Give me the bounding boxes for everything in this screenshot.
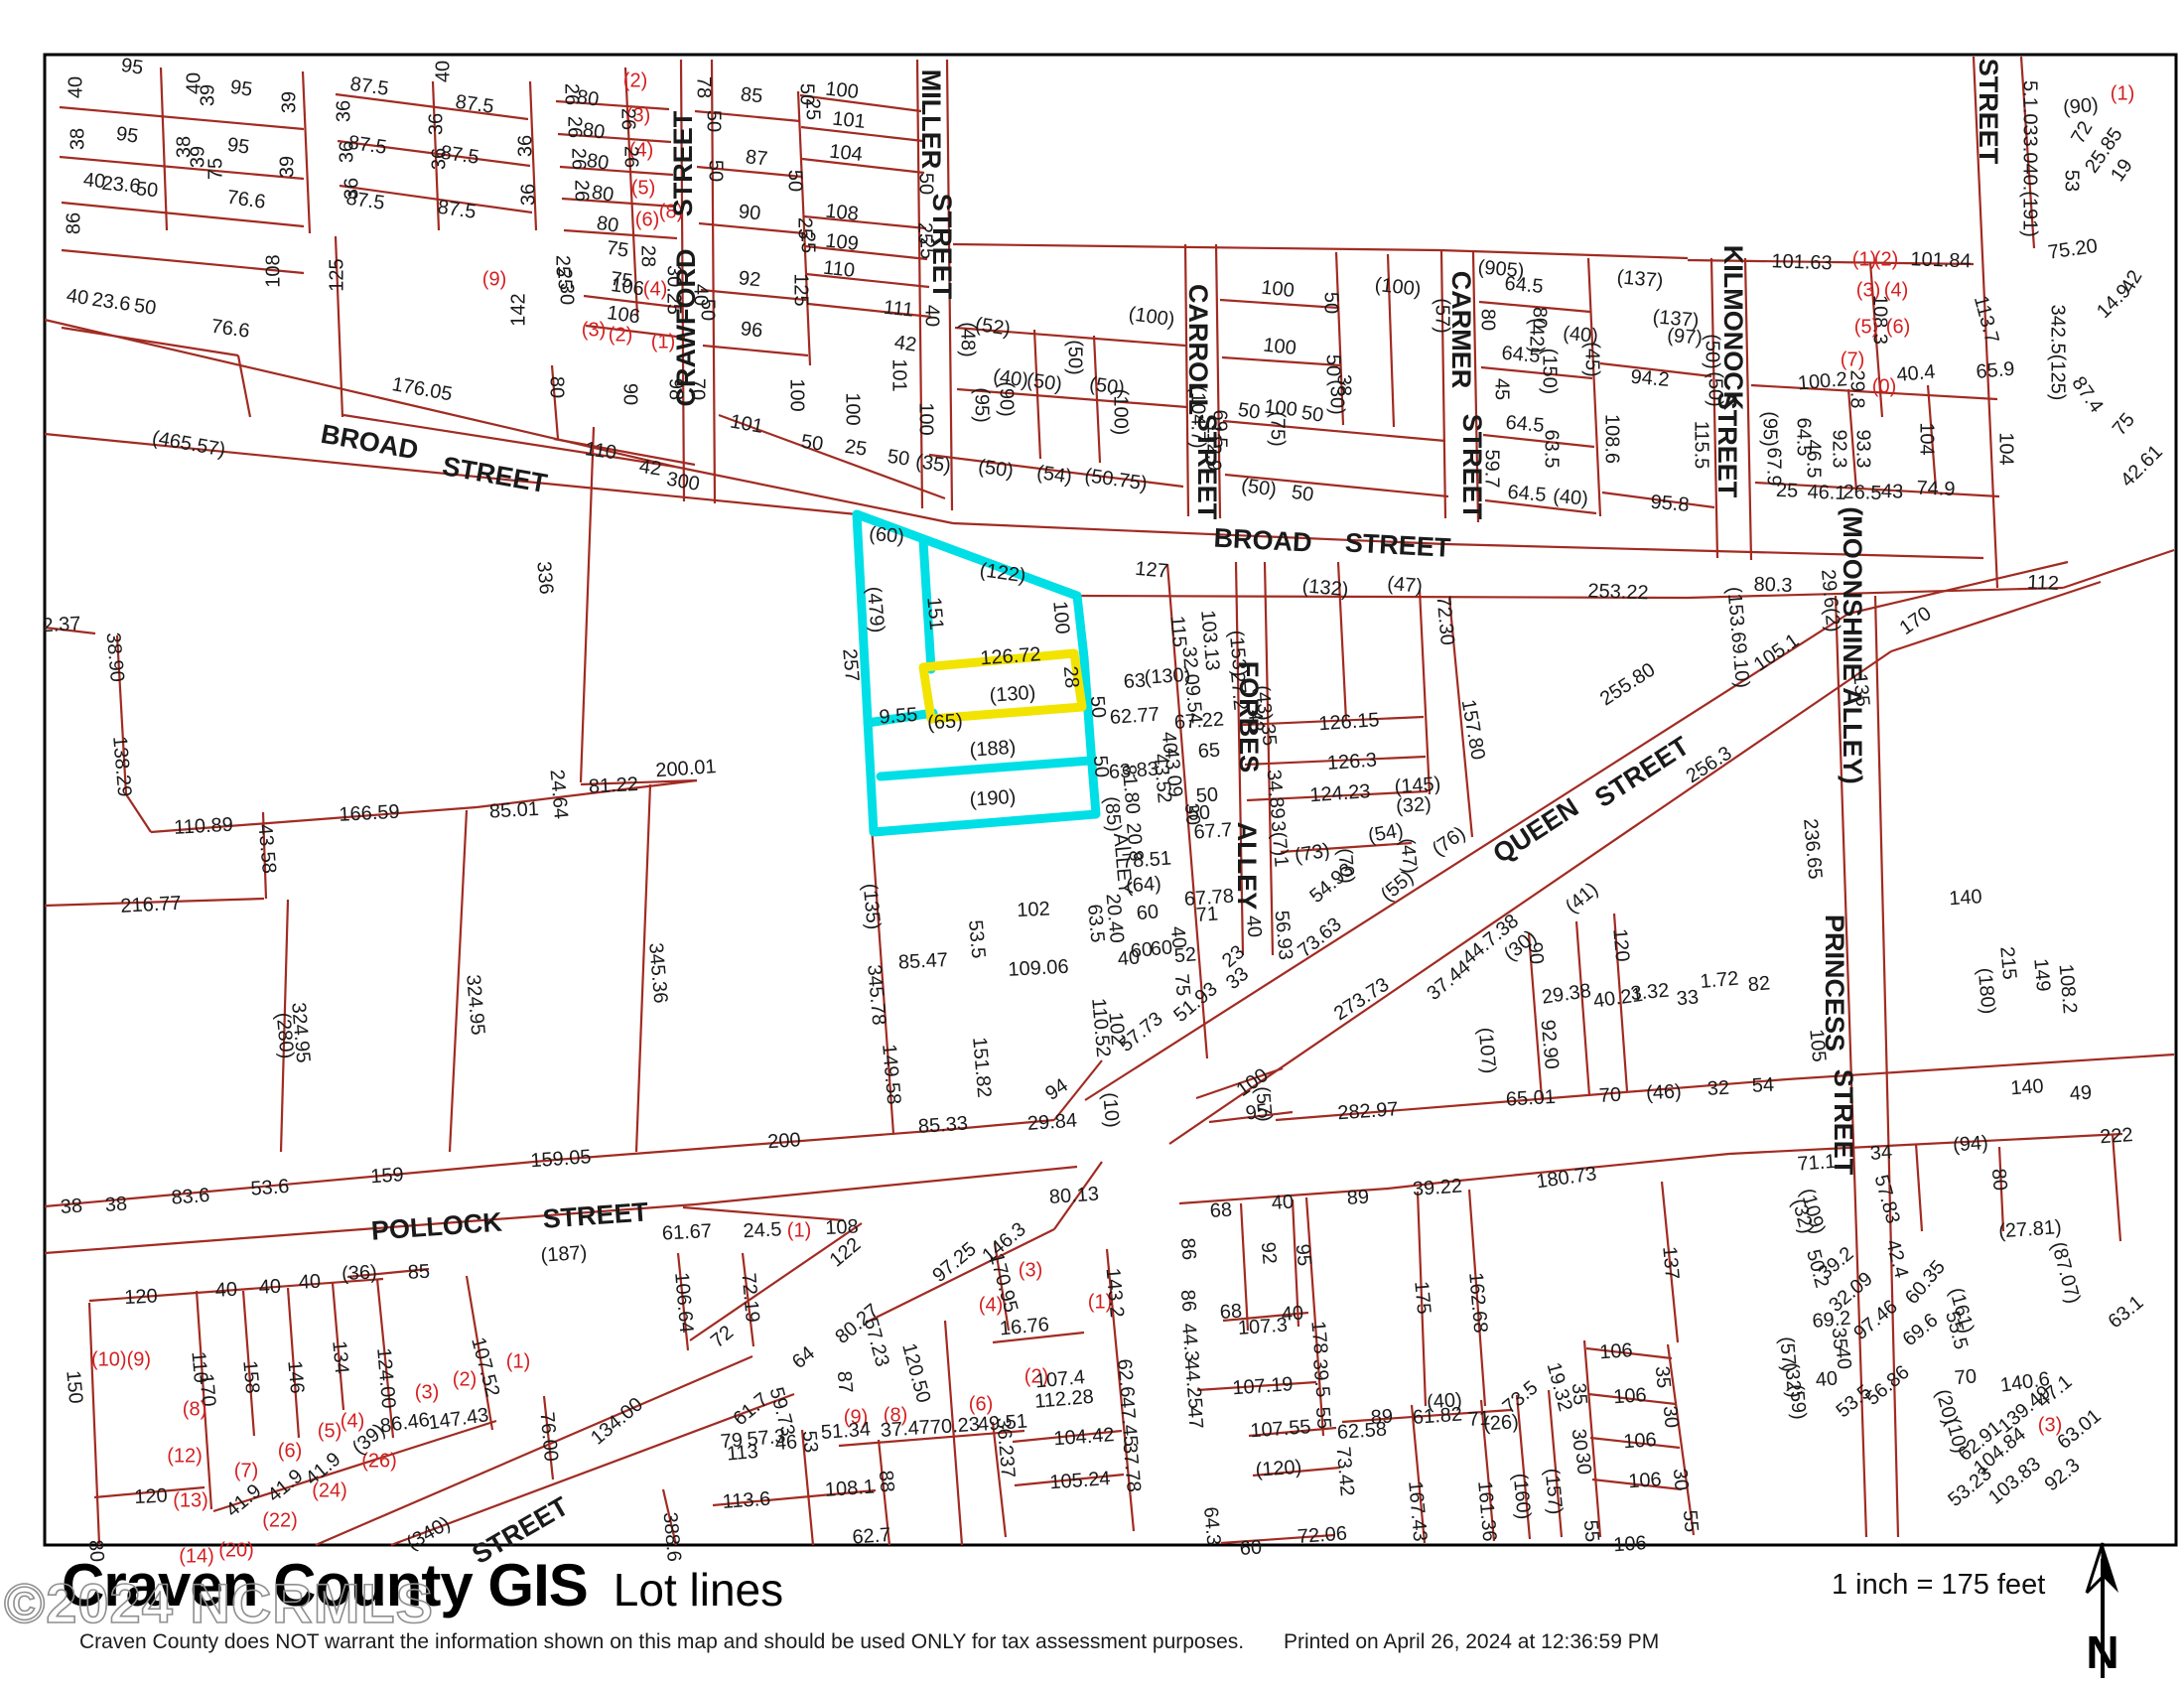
map-label: 64.5 bbox=[1505, 412, 1546, 437]
street-label: STREET bbox=[1829, 1069, 1858, 1176]
map-label: 107.3 bbox=[1237, 1315, 1288, 1339]
map-label: (7) bbox=[1841, 349, 1864, 370]
map-label: 39 bbox=[276, 156, 298, 178]
map-label: (87.07) bbox=[2047, 1239, 2085, 1306]
map-label: 50.2 bbox=[1802, 1247, 1833, 1290]
map-label: 345.78 bbox=[863, 964, 889, 1027]
map-label: 68 bbox=[1209, 1199, 1233, 1222]
map-label: 100 bbox=[1048, 600, 1073, 634]
map-label: 95 bbox=[229, 76, 254, 101]
map-label: 71 bbox=[1195, 904, 1219, 926]
map-label: 200.01 bbox=[655, 756, 718, 781]
map-label: 146 bbox=[283, 1359, 308, 1394]
map-label: 62.7 bbox=[852, 1524, 891, 1549]
map-label: (5) bbox=[1854, 316, 1878, 338]
map-label: 113.7 bbox=[1970, 294, 2003, 347]
map-label: 33 bbox=[1676, 986, 1700, 1010]
map-label: 24.5 bbox=[743, 1218, 782, 1242]
map-label: 100 bbox=[1260, 277, 1295, 302]
map-label: 55 bbox=[1311, 1406, 1335, 1430]
map-label: 108.1 bbox=[824, 1477, 875, 1501]
map-label: 9.55 bbox=[879, 704, 918, 729]
map-label: 30 bbox=[1669, 1468, 1693, 1491]
map-label: 36 bbox=[425, 113, 447, 135]
map-label: 67.7 bbox=[1193, 819, 1233, 844]
map-label: 87.5 bbox=[436, 197, 478, 223]
map-label: 65.01 bbox=[1505, 1086, 1556, 1111]
map-label: 120 bbox=[124, 1285, 158, 1309]
map-label: (6) bbox=[278, 1440, 302, 1462]
street-label: KILMONOCK bbox=[1718, 245, 1748, 411]
map-label: 50 bbox=[887, 446, 911, 471]
map-label: 55 bbox=[1679, 1509, 1703, 1533]
map-label: 70.23 bbox=[929, 1414, 980, 1439]
map-label: 55 bbox=[1579, 1519, 1603, 1543]
map-label: 38 bbox=[60, 1196, 83, 1218]
street-label: MILLER bbox=[916, 70, 946, 170]
lot-line bbox=[695, 1167, 1077, 1204]
lot-line bbox=[1588, 258, 1600, 516]
map-label: 29.8 bbox=[1846, 370, 1868, 409]
map-label: 50 bbox=[703, 110, 725, 132]
map-label: 256.3 bbox=[1683, 743, 1736, 788]
map-label: 178 bbox=[1306, 1320, 1331, 1354]
map-label: 100 bbox=[1263, 396, 1297, 421]
map-label: (130) bbox=[989, 682, 1036, 707]
map-label: (153.69.10) bbox=[1722, 586, 1753, 689]
map-label: 106 bbox=[1623, 1429, 1658, 1453]
lot-line bbox=[581, 427, 594, 782]
map-label: 108 bbox=[824, 201, 859, 225]
map-label: (120) bbox=[1255, 1457, 1302, 1481]
map-label: 39 bbox=[197, 84, 218, 106]
map-label: (95) bbox=[1759, 411, 1781, 447]
lot-line bbox=[1439, 250, 1688, 258]
street-label: POLLOCK bbox=[370, 1207, 503, 1246]
map-label: 63.5 bbox=[1083, 904, 1108, 944]
map-label: 60 bbox=[1239, 1537, 1263, 1560]
map-label: (100) bbox=[1127, 303, 1175, 331]
map-label: 30 bbox=[556, 283, 578, 305]
map-label: 40 bbox=[1271, 1192, 1295, 1214]
map-label: 100 bbox=[824, 78, 859, 103]
lot-line bbox=[1483, 435, 1594, 447]
map-label: 34 bbox=[1869, 1142, 1893, 1165]
map-label: 53 bbox=[798, 1430, 822, 1454]
map-label: 25 bbox=[797, 231, 819, 253]
lot-line bbox=[161, 68, 167, 230]
map-label: 138.29 bbox=[108, 736, 135, 798]
lot-line bbox=[699, 223, 804, 233]
street-label: STREET bbox=[1589, 731, 1695, 813]
map-label: 125 bbox=[790, 273, 812, 306]
map-label: 92.3 bbox=[2041, 1455, 2085, 1496]
lot-line bbox=[1420, 590, 1430, 794]
map-label: 43.52 bbox=[1150, 753, 1175, 804]
street-label: PRINCESS bbox=[1820, 914, 1849, 1052]
map-label: 161.36 bbox=[1473, 1480, 1500, 1543]
map-label: 67.22 bbox=[1173, 709, 1224, 734]
map-label: 70 bbox=[1598, 1084, 1621, 1107]
map-label: 44.3 bbox=[1177, 1323, 1202, 1363]
street-label: STREET bbox=[542, 1196, 650, 1233]
lot-line bbox=[1481, 367, 1592, 378]
lot-line bbox=[690, 1223, 862, 1340]
map-label: 36 bbox=[514, 135, 536, 157]
map-label: 76.6 bbox=[209, 316, 251, 343]
map-label: 257 bbox=[838, 647, 863, 682]
map-label: 100.2 bbox=[1797, 368, 1848, 394]
copyright-watermark: ©2024 NCRMLS bbox=[4, 1571, 434, 1635]
map-label: 175 bbox=[1410, 1280, 1434, 1315]
map-label: (10)(9) bbox=[91, 1348, 151, 1370]
lot-line bbox=[1576, 921, 1589, 1095]
map-label: 109 bbox=[824, 230, 859, 255]
lot-line bbox=[238, 355, 250, 417]
lot-line bbox=[683, 1207, 844, 1220]
map-label: 142 bbox=[507, 293, 529, 326]
scale-text: 1 inch = 175 feet bbox=[1832, 1569, 2045, 1602]
street-label: STREET bbox=[1712, 392, 1742, 498]
map-label: 3(7)1 bbox=[1267, 820, 1293, 868]
map-label: (54) bbox=[1035, 462, 1073, 489]
map-label: (187) bbox=[540, 1242, 588, 1267]
map-label: 1.72 bbox=[1700, 968, 1740, 993]
lot-line bbox=[1306, 1197, 1323, 1436]
map-label: 100 bbox=[1262, 335, 1297, 359]
map-label: (97) bbox=[1666, 325, 1703, 350]
street-label: STREET bbox=[440, 451, 550, 498]
map-label: 3.32 bbox=[1630, 980, 1671, 1005]
map-label: 85 bbox=[407, 1261, 430, 1284]
map-label: 324.95 bbox=[462, 974, 488, 1037]
map-label: 101.84 bbox=[1910, 248, 1972, 272]
map-label: (3) bbox=[415, 1381, 439, 1403]
map-label: 120 bbox=[1608, 927, 1633, 962]
map-label: 110 bbox=[584, 438, 618, 464]
map-label: 110.52 bbox=[1087, 997, 1114, 1057]
map-label: 86 bbox=[63, 212, 84, 234]
map-label: 200 bbox=[767, 1129, 802, 1153]
map-label: 64.5 bbox=[1504, 273, 1545, 298]
map-label: 32 bbox=[1706, 1077, 1729, 1100]
street-label: BROAD bbox=[1213, 523, 1312, 558]
map-label: 56.93 bbox=[1271, 910, 1297, 961]
map-label: 50 bbox=[1322, 354, 1344, 376]
map-label: 75 bbox=[1170, 973, 1194, 997]
map-label: 41.9 bbox=[222, 1480, 266, 1522]
map-label: 65.9 bbox=[1976, 358, 2016, 383]
map-label: 87 bbox=[745, 146, 768, 170]
map-label: 28 bbox=[1059, 665, 1083, 689]
street-label: STREET bbox=[1457, 414, 1487, 520]
map-label: 134 bbox=[328, 1339, 352, 1374]
lot-line bbox=[303, 71, 310, 233]
map-label: 49 bbox=[2069, 1082, 2093, 1105]
map-label: (190) bbox=[969, 786, 1017, 811]
map-label: 88 bbox=[875, 1470, 898, 1493]
north-letter: N bbox=[2086, 1626, 2118, 1678]
map-label: (1) bbox=[2111, 82, 2134, 104]
map-label: 63.5 bbox=[1541, 430, 1563, 469]
map-label: 104 bbox=[828, 141, 863, 166]
map-label: 86 bbox=[1176, 1289, 1200, 1313]
map-label: 96 bbox=[740, 318, 763, 342]
street-label: CARMER bbox=[1446, 271, 1476, 389]
map-label: 63.1 bbox=[2105, 1292, 2148, 1334]
lot-line bbox=[60, 107, 304, 129]
map-label: (65) bbox=[926, 710, 963, 734]
map-label: (40) bbox=[1552, 486, 1588, 510]
map-label: 50 bbox=[784, 170, 806, 192]
map-label: 53.5 bbox=[964, 919, 989, 960]
map-label: 85 bbox=[740, 83, 763, 107]
map-label: (479) bbox=[863, 586, 888, 633]
map-label: 336 bbox=[532, 560, 557, 595]
map-label: 64.5 bbox=[1501, 343, 1542, 367]
map-label: 72.19 bbox=[738, 1272, 763, 1324]
map-label: 46.5 bbox=[1803, 440, 1825, 479]
lot-line bbox=[804, 216, 926, 228]
map-label: 78 bbox=[693, 76, 715, 98]
map-label: 80 bbox=[591, 182, 615, 207]
map-label: 36 bbox=[517, 184, 539, 206]
map-label: 125 bbox=[326, 258, 347, 291]
map-label: (50) bbox=[1025, 369, 1063, 396]
map-label: 50 bbox=[1086, 695, 1110, 719]
map-label: 40 bbox=[432, 61, 454, 82]
map-label: 64 bbox=[788, 1342, 819, 1373]
map-label: 120.50 bbox=[897, 1340, 934, 1405]
map-label: 92.3 bbox=[1829, 430, 1850, 469]
map-label: 42 bbox=[893, 332, 918, 356]
map-label: 38 bbox=[67, 128, 88, 150]
map-label: 24.64 bbox=[546, 769, 572, 820]
map-label: 137 bbox=[1658, 1245, 1683, 1280]
north-arrow-icon: N bbox=[2063, 1541, 2142, 1688]
map-label: (50) bbox=[1064, 340, 1086, 375]
map-label: 36 bbox=[341, 178, 362, 200]
map-label: 112 bbox=[2027, 571, 2060, 595]
map-label: (0) bbox=[1872, 375, 1896, 397]
lot-line bbox=[802, 159, 924, 173]
map-label: 108 bbox=[825, 1215, 859, 1239]
map-label: (157) bbox=[1541, 1468, 1567, 1515]
map-label: (340) bbox=[403, 1512, 454, 1554]
map-label: 72.06 bbox=[1297, 1523, 1347, 1548]
map-label: (150) bbox=[1539, 349, 1561, 395]
map-label: 53 bbox=[2061, 170, 2083, 192]
map-label: 26 bbox=[617, 108, 639, 130]
map-label: (6) bbox=[969, 1393, 993, 1415]
gis-map-canvas: 409540399539389538397595394023.65076.686… bbox=[0, 0, 2184, 1688]
map-label: 69.6 bbox=[1899, 1310, 1943, 1351]
map-label: 52 bbox=[1173, 943, 1197, 967]
map-label: 122 bbox=[826, 1233, 866, 1271]
map-label: (280) bbox=[272, 1012, 298, 1059]
map-label: (180) bbox=[1974, 967, 1999, 1015]
lot-line bbox=[2113, 1134, 2120, 1241]
map-label: 72 bbox=[2067, 118, 2097, 148]
map-label: 115.5 bbox=[1691, 421, 1712, 470]
map-label: 216.77 bbox=[120, 893, 182, 917]
map-label: 94.2 bbox=[1630, 366, 1671, 391]
map-label: 50 bbox=[800, 431, 825, 456]
map-label: 35 bbox=[1651, 1365, 1675, 1389]
printed-timestamp: Printed on April 26, 2024 at 12:36:59 PM bbox=[1284, 1630, 1659, 1653]
map-label: 61.67 bbox=[661, 1220, 712, 1245]
map-label: 40 bbox=[66, 285, 90, 310]
map-label: (3) bbox=[1019, 1259, 1042, 1281]
lot-line bbox=[556, 1130, 943, 1160]
map-label: 87.4 bbox=[2067, 372, 2107, 417]
map-label: 83.6 bbox=[171, 1185, 210, 1209]
map-label: 65 bbox=[1197, 740, 1221, 763]
map-label: 110 bbox=[822, 257, 856, 282]
map-label: 282.97 bbox=[1337, 1098, 1400, 1124]
map-label: 126.15 bbox=[1318, 709, 1381, 735]
map-label: 62.77 bbox=[1109, 704, 1160, 729]
map-label: 126.72 bbox=[980, 643, 1042, 669]
street-label: STREET bbox=[668, 110, 698, 216]
lot-line bbox=[2063, 550, 2174, 588]
map-label: 75.20 bbox=[2047, 235, 2100, 264]
map-label: (188) bbox=[969, 737, 1017, 762]
map-label: 87.5 bbox=[454, 91, 495, 118]
map-label: 51.34 bbox=[820, 1419, 871, 1444]
map-label: 87 bbox=[833, 1370, 857, 1394]
map-label: (6) bbox=[635, 209, 659, 230]
map-label: 63 bbox=[1123, 670, 1147, 693]
map-label: 124.00 bbox=[372, 1347, 399, 1410]
map-label: 101 bbox=[831, 108, 866, 133]
map-label: 86 bbox=[1176, 1237, 1200, 1261]
map-label: 112.28 bbox=[1033, 1386, 1094, 1413]
map-label: 149.58 bbox=[878, 1044, 904, 1106]
layer-title: Lot lines bbox=[614, 1563, 783, 1617]
map-label: 342.5(125) bbox=[2047, 305, 2069, 401]
map-label: 37.47 bbox=[880, 1417, 930, 1442]
map-label: (64) bbox=[1125, 873, 1161, 897]
map-label: 236.65 bbox=[1799, 818, 1826, 881]
map-label: 81.22 bbox=[588, 774, 638, 798]
map-label: 95 bbox=[226, 134, 251, 159]
map-label: 89 bbox=[1370, 1406, 1394, 1429]
map-label: 106.64 bbox=[670, 1272, 697, 1335]
map-label: 120 bbox=[134, 1484, 168, 1508]
map-label: 16.76 bbox=[999, 1314, 1050, 1339]
map-label: 50 bbox=[1300, 402, 1325, 427]
map-label: (32) bbox=[1395, 793, 1432, 817]
street-label: QUEEN bbox=[1488, 792, 1584, 869]
map-label: 94 bbox=[1041, 1074, 1072, 1105]
map-label: 151 bbox=[922, 596, 947, 631]
map-label: (47) bbox=[1386, 573, 1423, 598]
map-label: (465.57) bbox=[151, 427, 227, 462]
map-label: 108.2 bbox=[2055, 963, 2081, 1015]
map-label: 85.33 bbox=[917, 1113, 968, 1138]
map-label: 40 bbox=[258, 1276, 281, 1299]
map-label: 40 bbox=[214, 1279, 237, 1302]
disclaimer-body: Craven County does NOT warrant the infor… bbox=[79, 1630, 1244, 1653]
map-label: 75 bbox=[205, 158, 226, 180]
map-label: 126.3 bbox=[1326, 750, 1377, 774]
map-label: 25 bbox=[844, 436, 869, 461]
map-label: (90) bbox=[2062, 94, 2099, 119]
map-label: 75 bbox=[2109, 409, 2139, 440]
map-label: 75 bbox=[606, 237, 630, 262]
street-label: CARROLL bbox=[1183, 284, 1213, 415]
lot-line bbox=[564, 230, 677, 238]
map-label: 26 bbox=[620, 146, 642, 168]
lot-line bbox=[89, 1303, 99, 1545]
map-label: 140 bbox=[2010, 1075, 2045, 1099]
map-label: (95) bbox=[971, 387, 993, 423]
map-label: (5) bbox=[631, 177, 655, 199]
map-label: 107.19 bbox=[1232, 1373, 1295, 1399]
map-label: 30 bbox=[1571, 1452, 1595, 1476]
map-label: 106 bbox=[1613, 1532, 1648, 1556]
map-label: 47.45 bbox=[1116, 1396, 1142, 1448]
map-label: 110.89 bbox=[174, 814, 234, 839]
street-label: (MOONSHINE ALLEY) bbox=[1838, 506, 1867, 784]
lot-line bbox=[1223, 421, 1445, 441]
map-label: 38.90 bbox=[102, 632, 128, 683]
lot-line bbox=[1034, 330, 1040, 459]
map-label: (76) bbox=[1429, 822, 1470, 860]
map-label: (6) bbox=[1886, 316, 1910, 338]
map-label: 162.68 bbox=[1464, 1272, 1491, 1335]
map-label: 215 bbox=[1995, 945, 2020, 980]
map-label: 95 bbox=[1292, 1243, 1315, 1267]
map-label: 36 bbox=[333, 100, 354, 122]
map-label: 80 bbox=[546, 376, 568, 398]
map-label: (10) bbox=[1098, 1091, 1123, 1128]
map-label: (4) bbox=[979, 1294, 1003, 1316]
map-label: 105.24 bbox=[1049, 1468, 1112, 1493]
lot-line bbox=[126, 794, 151, 832]
map-label: 101 bbox=[729, 411, 765, 438]
map-label: (50.75) bbox=[1083, 465, 1149, 495]
map-label: 39 bbox=[278, 91, 300, 113]
map-label: 45 bbox=[1491, 378, 1513, 400]
map-label: 80.13 bbox=[1048, 1184, 1099, 1208]
parcel-highlight-cyan bbox=[881, 761, 1090, 776]
map-label: 80 bbox=[596, 212, 620, 237]
map-label: 167.43 bbox=[1404, 1480, 1431, 1543]
map-label: (9) bbox=[482, 268, 506, 290]
map-label: 29.84 bbox=[1026, 1110, 1077, 1135]
map-label: 106 bbox=[1628, 1469, 1663, 1492]
map-label: (27.81) bbox=[1998, 1216, 2063, 1242]
street-label: STREET bbox=[1192, 414, 1222, 520]
map-label: 40 bbox=[1832, 1346, 1855, 1370]
map-label: 40 bbox=[65, 76, 86, 98]
map-label: 85.47 bbox=[897, 949, 948, 974]
lot-line bbox=[1265, 562, 1273, 955]
map-label: (132) bbox=[1301, 575, 1349, 601]
map-label: 149 bbox=[2029, 957, 2054, 992]
map-label: (94) bbox=[1952, 1132, 1988, 1156]
map-label: (5) bbox=[318, 1420, 341, 1442]
map-label: 76.00 bbox=[536, 1411, 562, 1463]
map-label: (2) bbox=[453, 1368, 477, 1390]
map-label: 28 bbox=[637, 245, 659, 267]
disclaimer-text: Craven County does NOT warrant the infor… bbox=[79, 1630, 1659, 1654]
map-label: 90 bbox=[738, 201, 761, 224]
map-label: (50) bbox=[977, 456, 1015, 483]
lot-lines-map: 409540399539389538397595394023.65076.686… bbox=[0, 0, 2184, 1688]
